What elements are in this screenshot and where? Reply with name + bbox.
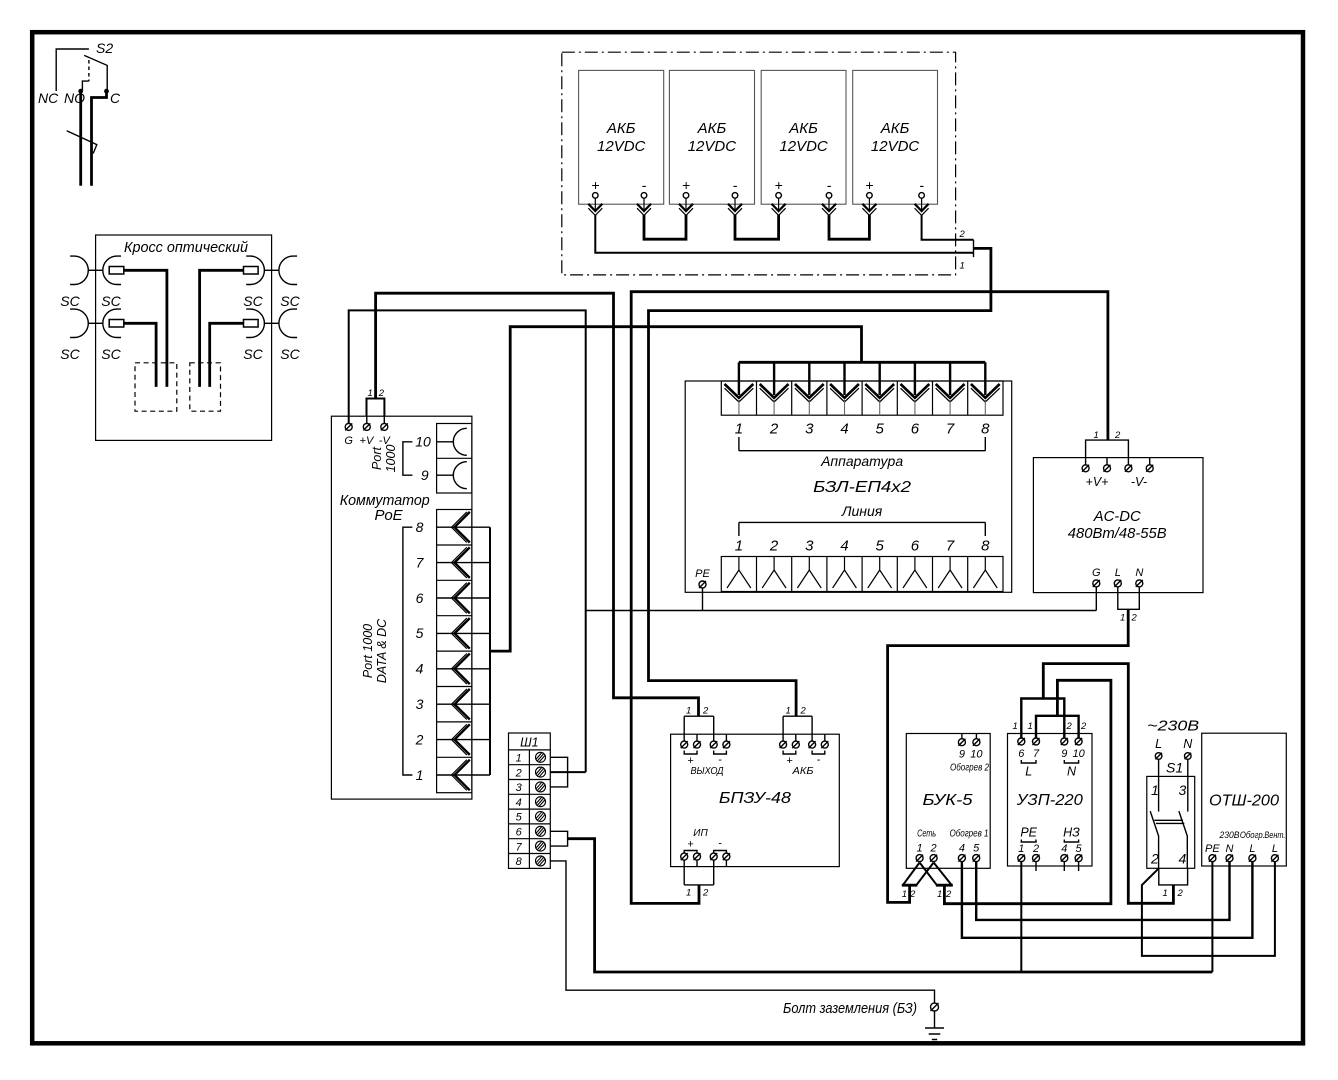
svg-text:5: 5 (1076, 843, 1083, 855)
svg-text:АКБ: АКБ (791, 766, 814, 777)
svg-text:8: 8 (981, 538, 990, 555)
svg-text:SC: SC (60, 346, 80, 362)
svg-text:Обогрев 2: Обогрев 2 (950, 762, 989, 774)
svg-text:G: G (1092, 567, 1101, 579)
svg-text:АКБ: АКБ (606, 120, 636, 137)
svg-text:9: 9 (421, 467, 429, 483)
svg-text:9: 9 (959, 749, 965, 761)
svg-text:S2: S2 (96, 40, 113, 56)
svg-text:1: 1 (1163, 888, 1168, 899)
svg-text:+: + (775, 177, 783, 193)
svg-text:Линия: Линия (841, 503, 883, 519)
svg-text:SC: SC (243, 293, 263, 309)
svg-text:6: 6 (911, 538, 920, 555)
svg-text:Обогр.: Обогр. (1240, 830, 1265, 841)
svg-text:8: 8 (516, 856, 523, 868)
svg-text:1000: 1000 (384, 445, 398, 473)
svg-text:ОТШ-200: ОТШ-200 (1209, 793, 1279, 810)
svg-text:4: 4 (840, 538, 848, 555)
svg-text:2: 2 (959, 229, 966, 240)
svg-text:1: 1 (1018, 843, 1024, 855)
svg-text:-: - (827, 177, 832, 193)
svg-text:SC: SC (280, 346, 300, 362)
svg-text:SC: SC (101, 293, 121, 309)
svg-text:AC-DC: AC-DC (1093, 508, 1141, 525)
svg-text:+: + (682, 177, 690, 193)
svg-text:L: L (1249, 843, 1255, 855)
svg-text:БПЗУ-48: БПЗУ-48 (719, 790, 791, 807)
svg-text:SC: SC (280, 293, 300, 309)
svg-text:2: 2 (702, 706, 709, 717)
svg-text:1: 1 (416, 767, 424, 783)
svg-text:C: C (110, 90, 121, 106)
svg-text:2: 2 (1131, 613, 1138, 624)
svg-text:L: L (1115, 567, 1121, 579)
svg-text:АКБ: АКБ (697, 120, 727, 137)
svg-text:L: L (1025, 765, 1032, 779)
svg-text:Вент.: Вент. (1264, 830, 1285, 841)
svg-text:-: - (817, 754, 821, 766)
svg-text:РоЕ: РоЕ (375, 507, 404, 524)
svg-text:SC: SC (60, 293, 80, 309)
svg-text:4: 4 (516, 797, 522, 809)
svg-text:7: 7 (946, 538, 955, 555)
svg-text:ИП: ИП (693, 828, 708, 839)
svg-text:УЗП-220: УЗП-220 (1016, 792, 1083, 809)
svg-text:1: 1 (960, 261, 965, 272)
svg-text:2: 2 (1066, 721, 1073, 732)
svg-text:2: 2 (930, 843, 937, 855)
svg-text:NC: NC (38, 90, 59, 106)
svg-text:4: 4 (959, 843, 965, 855)
svg-text:1: 1 (786, 706, 791, 717)
svg-text:2: 2 (769, 421, 779, 438)
svg-text:9: 9 (1061, 748, 1067, 760)
svg-text:10: 10 (1072, 748, 1085, 760)
svg-text:2: 2 (1114, 430, 1121, 441)
svg-text:Болт заземления (БЗ): Болт заземления (БЗ) (783, 1000, 917, 1017)
svg-text:1: 1 (516, 753, 522, 765)
svg-text:Обогрев 1: Обогрев 1 (950, 828, 989, 840)
svg-text:2: 2 (1150, 851, 1159, 867)
svg-text:10: 10 (415, 434, 431, 450)
svg-text:ВЫХОД: ВЫХОД (691, 766, 724, 777)
svg-text:480Вт/48-55В: 480Вт/48-55В (1068, 525, 1167, 542)
svg-text:S1: S1 (1166, 760, 1183, 776)
svg-text:1: 1 (1094, 430, 1099, 441)
svg-text:1: 1 (686, 888, 691, 899)
svg-text:N: N (1226, 843, 1234, 855)
svg-text:5: 5 (516, 812, 523, 824)
svg-text:1: 1 (937, 889, 942, 900)
svg-text:7: 7 (416, 554, 425, 570)
svg-text:+: + (591, 177, 599, 193)
svg-text:Кросс оптический: Кросс оптический (124, 239, 249, 256)
svg-text:6: 6 (416, 590, 424, 606)
svg-text:DATA & DC: DATA & DC (375, 618, 389, 683)
svg-text:2: 2 (378, 388, 385, 399)
svg-text:БУК-5: БУК-5 (923, 792, 973, 809)
svg-text:2: 2 (800, 706, 807, 717)
svg-text:1: 1 (902, 889, 907, 900)
svg-text:1: 1 (686, 706, 691, 717)
svg-text:L: L (1272, 843, 1278, 855)
svg-text:5: 5 (973, 843, 980, 855)
svg-text:-V-: -V- (1131, 475, 1147, 489)
svg-text:+V+: +V+ (1086, 475, 1109, 489)
svg-text:4: 4 (416, 661, 424, 677)
svg-text:АКБ: АКБ (880, 120, 910, 137)
svg-text:1: 1 (1013, 721, 1018, 732)
svg-text:8: 8 (416, 519, 424, 535)
svg-text:БЗЛ-ЕП4х2: БЗЛ-ЕП4х2 (813, 479, 911, 496)
svg-text:8: 8 (981, 421, 990, 438)
svg-text:Port 1000: Port 1000 (361, 624, 375, 678)
svg-text:7: 7 (1033, 748, 1040, 760)
svg-text:+: + (687, 839, 694, 851)
svg-text:N: N (1135, 567, 1143, 579)
svg-text:-: - (733, 177, 738, 193)
svg-text:N: N (1183, 737, 1193, 751)
svg-text:N: N (1067, 765, 1077, 779)
svg-text:~230В: ~230В (1147, 718, 1199, 735)
svg-text:G: G (344, 435, 353, 447)
svg-text:12VDC: 12VDC (779, 138, 828, 155)
svg-text:PE: PE (1205, 843, 1220, 855)
svg-text:6: 6 (516, 827, 523, 839)
svg-text:-: - (718, 838, 722, 850)
svg-text:1: 1 (735, 421, 743, 438)
svg-text:3: 3 (516, 782, 523, 794)
svg-text:2: 2 (1080, 721, 1087, 732)
svg-text:Сеть: Сеть (917, 829, 936, 840)
svg-text:2: 2 (515, 767, 522, 779)
svg-text:3: 3 (1179, 782, 1187, 798)
svg-text:1: 1 (735, 538, 743, 555)
svg-text:2: 2 (769, 538, 779, 555)
svg-text:PE: PE (1020, 826, 1037, 840)
svg-text:5: 5 (416, 625, 424, 641)
svg-text:2: 2 (945, 889, 952, 900)
svg-text:1: 1 (1151, 782, 1159, 798)
svg-text:АКБ: АКБ (788, 120, 818, 137)
svg-text:7: 7 (516, 841, 523, 853)
svg-text:НЗ: НЗ (1063, 826, 1080, 840)
svg-text:12VDC: 12VDC (871, 138, 920, 155)
svg-text:2: 2 (415, 731, 424, 747)
svg-text:3: 3 (805, 421, 814, 438)
svg-text:230В: 230В (1219, 830, 1240, 841)
svg-text:Ш1: Ш1 (520, 736, 538, 750)
svg-text:6: 6 (1018, 748, 1025, 760)
svg-text:2: 2 (702, 888, 709, 899)
svg-text:12VDC: 12VDC (597, 138, 646, 155)
svg-text:+: + (865, 177, 873, 193)
svg-text:Аппаратура: Аппаратура (820, 453, 903, 469)
svg-text:SC: SC (243, 346, 263, 362)
svg-text:2: 2 (909, 889, 916, 900)
svg-text:1: 1 (917, 843, 923, 855)
svg-text:1: 1 (1028, 721, 1033, 732)
svg-text:12VDC: 12VDC (688, 138, 737, 155)
svg-text:PE: PE (695, 568, 710, 580)
svg-text:-: - (919, 177, 924, 193)
svg-text:Port: Port (370, 447, 384, 470)
svg-text:-: - (718, 754, 722, 766)
svg-text:L: L (1155, 737, 1162, 751)
svg-text:SC: SC (101, 346, 121, 362)
svg-text:3: 3 (416, 696, 424, 712)
svg-text:2: 2 (1177, 888, 1184, 899)
svg-text:3: 3 (805, 538, 814, 555)
svg-text:4: 4 (840, 421, 848, 438)
svg-text:+V: +V (360, 435, 375, 447)
svg-text:7: 7 (946, 421, 955, 438)
svg-text:4: 4 (1179, 851, 1187, 867)
svg-text:5: 5 (876, 421, 885, 438)
svg-text:2: 2 (1032, 843, 1039, 855)
svg-text:5: 5 (876, 538, 885, 555)
svg-text:-: - (642, 177, 647, 193)
svg-text:1: 1 (368, 388, 373, 399)
svg-text:4: 4 (1061, 843, 1067, 855)
svg-text:1: 1 (1120, 613, 1125, 624)
svg-text:10: 10 (970, 749, 983, 761)
svg-text:6: 6 (911, 421, 920, 438)
